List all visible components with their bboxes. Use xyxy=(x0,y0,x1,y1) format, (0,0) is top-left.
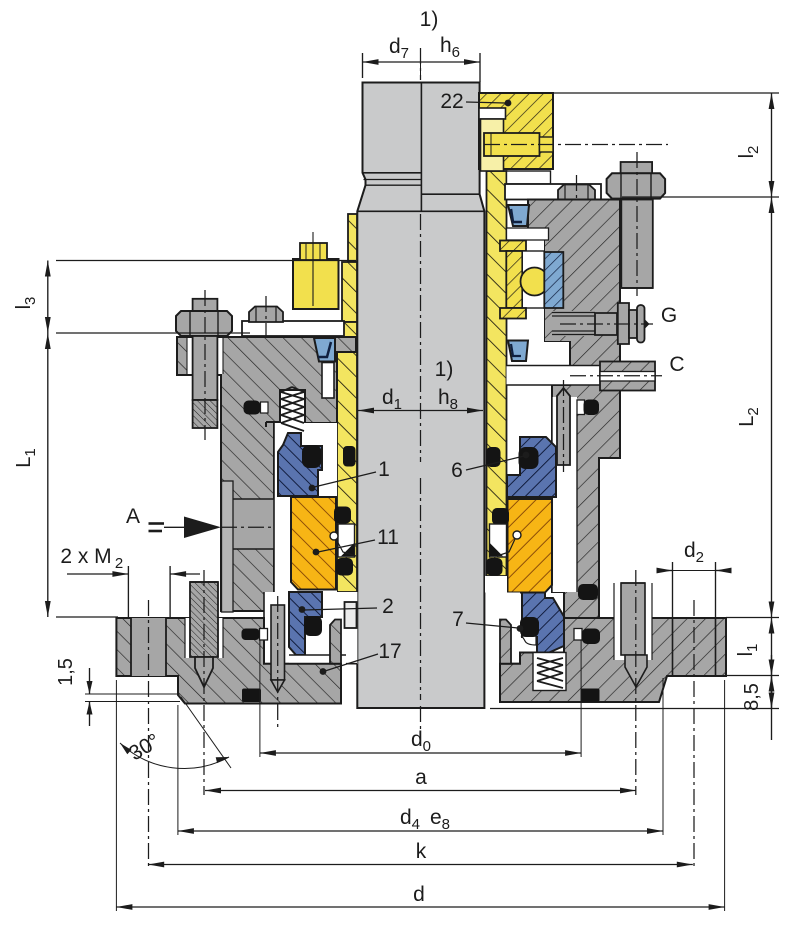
svg-text:7: 7 xyxy=(452,608,464,631)
svg-text:6: 6 xyxy=(451,459,463,482)
svg-text:C: C xyxy=(669,353,684,376)
svg-text:22: 22 xyxy=(440,90,463,113)
svg-text:2: 2 xyxy=(115,555,123,572)
svg-text:k: k xyxy=(416,840,427,863)
svg-text:2: 2 xyxy=(382,595,394,618)
svg-text:G: G xyxy=(661,304,677,327)
svg-text:2 x M: 2 x M xyxy=(60,545,111,568)
svg-text:1,5: 1,5 xyxy=(55,658,77,686)
svg-text:1: 1 xyxy=(378,458,390,481)
svg-text:a: a xyxy=(415,766,427,789)
svg-text:8,5: 8,5 xyxy=(741,683,763,711)
svg-text:A: A xyxy=(126,505,140,528)
svg-text:1): 1) xyxy=(420,8,439,31)
svg-text:17: 17 xyxy=(378,640,401,663)
svg-text:11: 11 xyxy=(377,526,399,549)
svg-text:1): 1) xyxy=(435,358,454,381)
svg-text:d: d xyxy=(413,883,425,906)
